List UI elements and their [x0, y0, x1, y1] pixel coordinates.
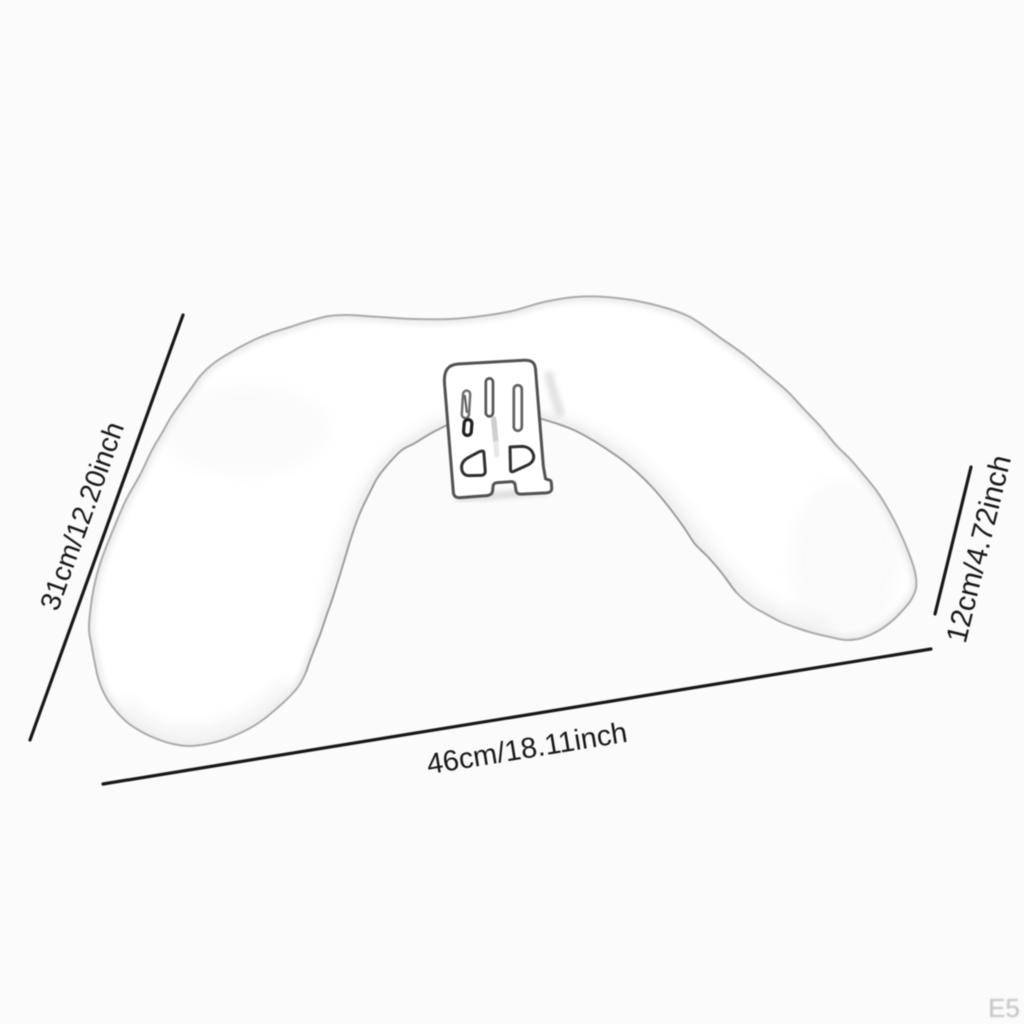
svg-text:E5: E5	[988, 993, 1020, 1023]
